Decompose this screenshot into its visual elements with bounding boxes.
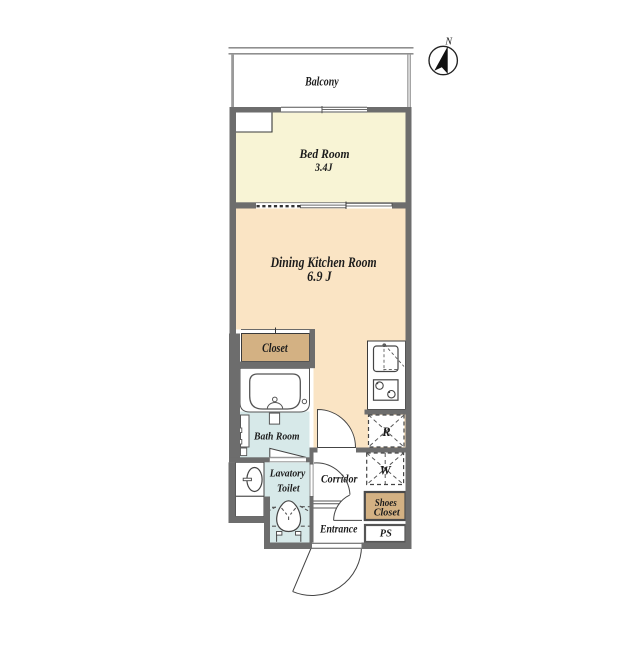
svg-text:W: W [380,463,392,477]
svg-text:Closet: Closet [374,506,401,518]
svg-text:Balcony: Balcony [304,74,339,88]
svg-text:Bath Room: Bath Room [253,431,300,443]
svg-text:R: R [381,425,390,439]
svg-text:Bed Room: Bed Room [299,146,350,161]
svg-text:3.4J: 3.4J [314,160,333,174]
svg-text:Closet: Closet [262,341,288,355]
svg-text:PS: PS [380,527,392,539]
svg-text:Entrance: Entrance [319,521,357,535]
svg-text:6.9 J: 6.9 J [307,269,332,285]
svg-text:Lavatory: Lavatory [269,468,306,479]
svg-text:N: N [444,37,453,48]
svg-text:Toilet: Toilet [277,483,301,494]
svg-text:Corridor: Corridor [321,472,358,486]
